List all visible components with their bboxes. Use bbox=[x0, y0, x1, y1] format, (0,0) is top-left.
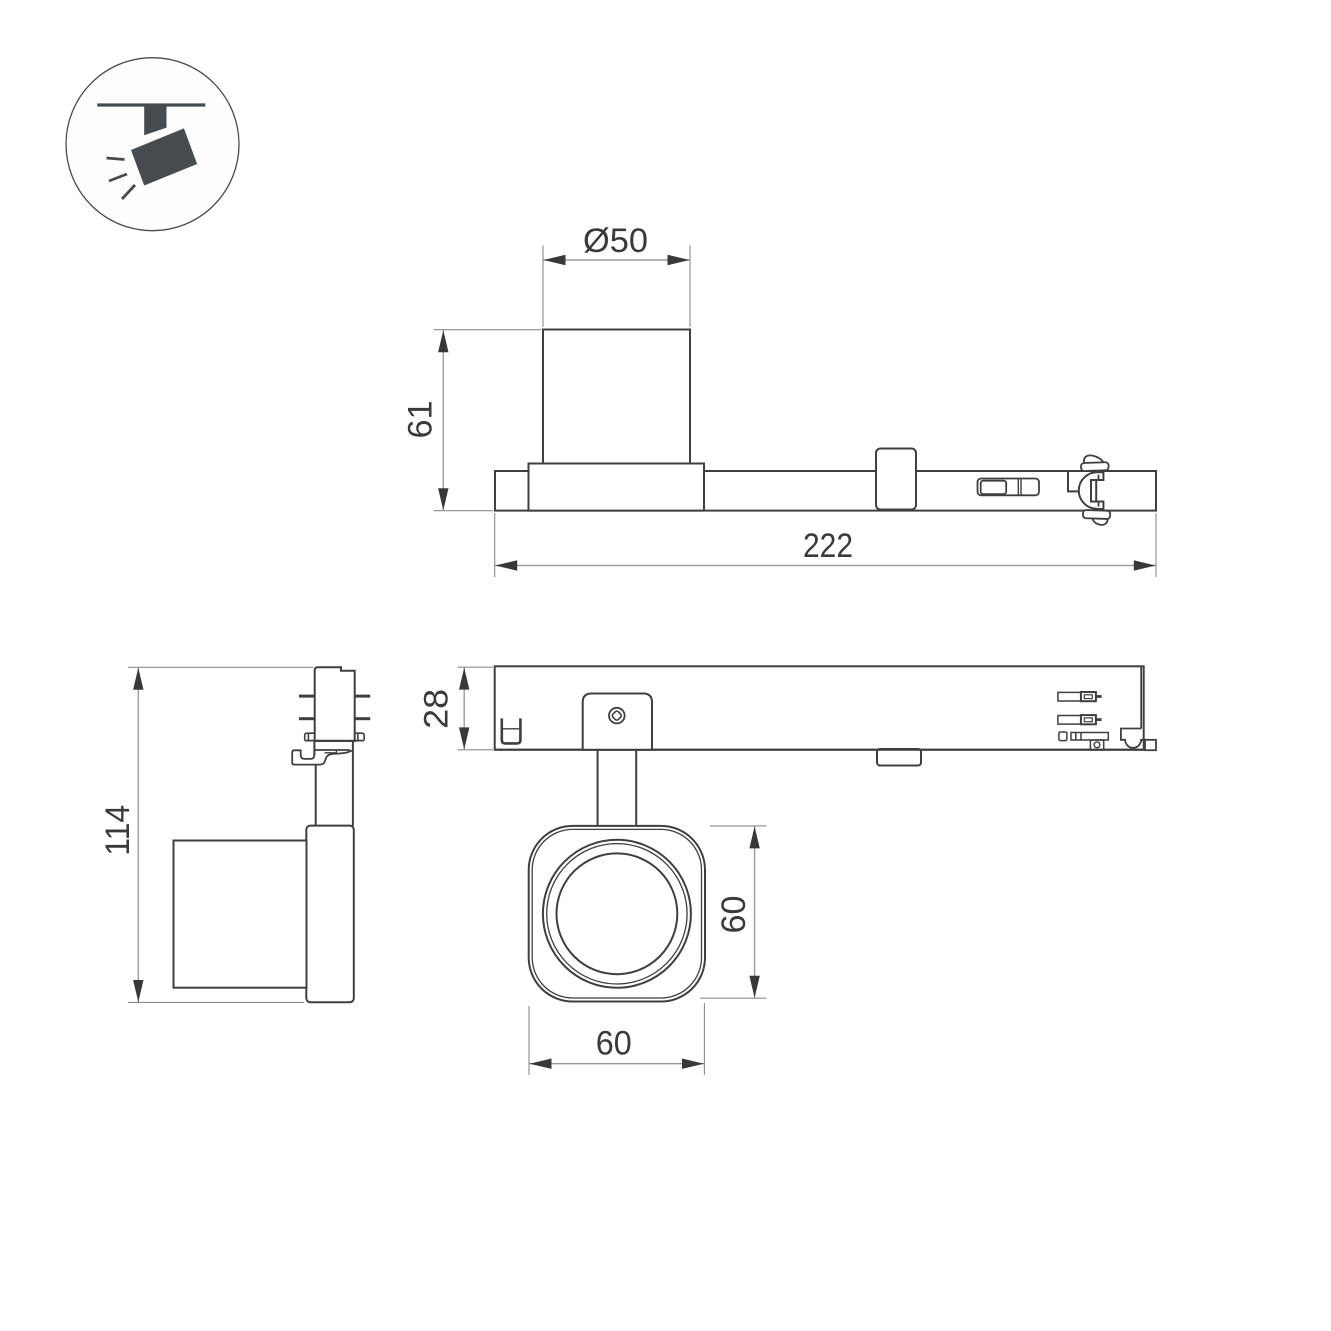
svg-text:60: 60 bbox=[715, 896, 753, 934]
svg-text:60: 60 bbox=[596, 1025, 632, 1063]
svg-text:61: 61 bbox=[402, 401, 440, 439]
svg-text:28: 28 bbox=[418, 689, 456, 729]
svg-text:114: 114 bbox=[99, 805, 137, 856]
svg-text:222: 222 bbox=[803, 527, 853, 565]
svg-text:Ø50: Ø50 bbox=[583, 222, 648, 260]
